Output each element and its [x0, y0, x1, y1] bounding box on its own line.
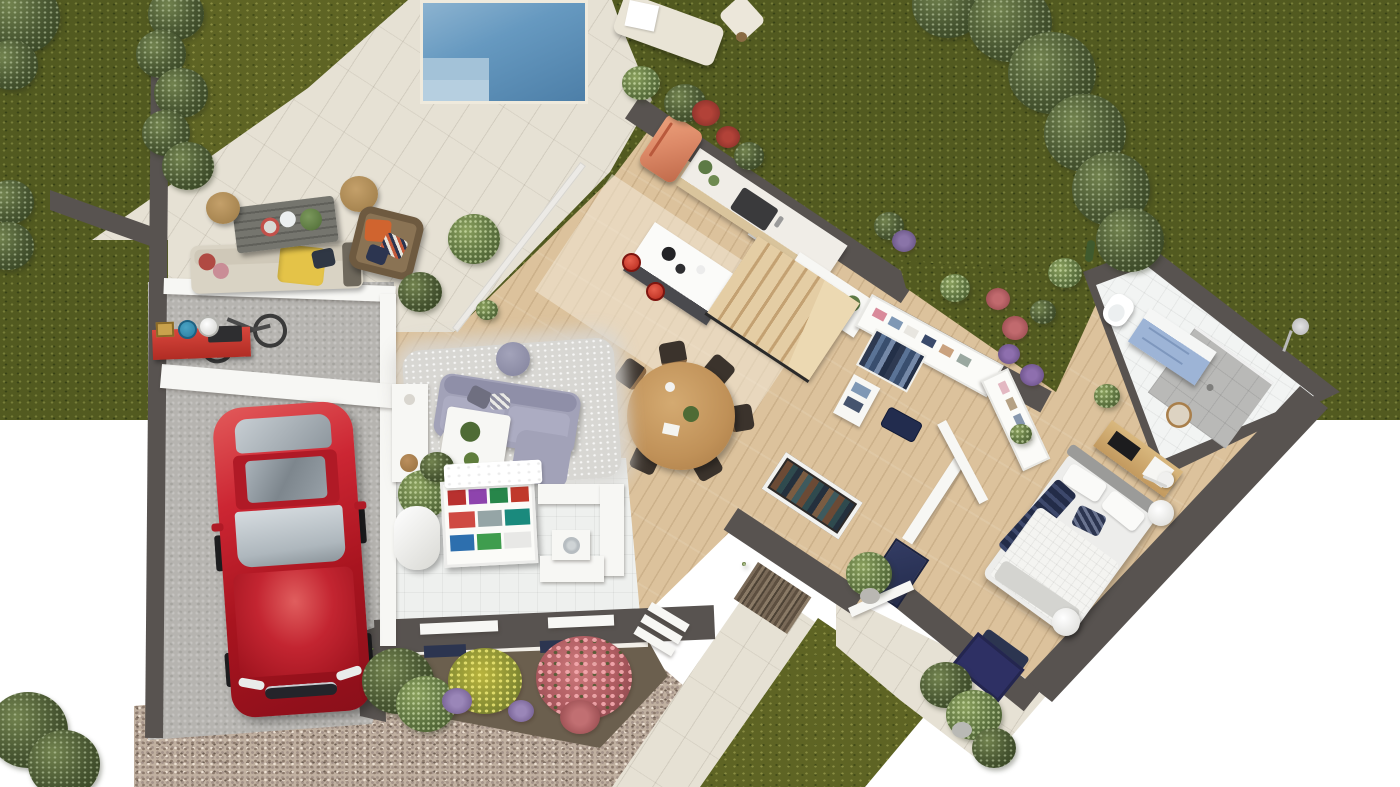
- bathroom-plant: [1094, 384, 1120, 408]
- plant-pot: [860, 588, 880, 604]
- table-plant: [299, 207, 324, 232]
- drawer-line: [1148, 327, 1189, 355]
- clothes-pile: [903, 325, 919, 339]
- blue-bucket: [178, 320, 197, 339]
- monstera-plant: [972, 728, 1016, 768]
- basket-icon: [400, 454, 418, 472]
- bush: [622, 66, 660, 100]
- storage-box: [449, 511, 476, 528]
- car-mirror: [211, 523, 224, 532]
- bush: [734, 142, 764, 170]
- storage-box: [489, 487, 508, 503]
- car-windshield: [234, 505, 346, 568]
- lavender-bush: [508, 700, 534, 722]
- pink-pillow: [213, 263, 230, 280]
- bowl-icon: [673, 262, 687, 276]
- clothes-pile: [872, 308, 888, 322]
- round-mirror: [1166, 402, 1192, 428]
- table-plant: [683, 406, 699, 422]
- storage-box: [510, 486, 529, 502]
- table-plant: [459, 420, 482, 443]
- counter-plant: [706, 173, 721, 188]
- red-flower-bush: [692, 100, 720, 126]
- fern-plant: [398, 272, 442, 312]
- vase-icon: [404, 394, 415, 405]
- rattan-pouf: [206, 192, 240, 224]
- plate-icon: [260, 216, 281, 237]
- car-sunroof: [245, 456, 328, 503]
- floor-pouf: [496, 342, 530, 376]
- storage-box: [447, 490, 466, 506]
- hedge-bush: [162, 142, 214, 190]
- bedroom-plant: [1010, 424, 1032, 444]
- bush: [1030, 300, 1056, 324]
- dining-table: [627, 362, 735, 470]
- red-sports-car: [205, 395, 379, 723]
- terrace-side-table: [1054, 610, 1056, 612]
- storage-box: [450, 534, 475, 551]
- pool-steps: [423, 80, 489, 101]
- shower-drain-icon: [1205, 383, 1215, 393]
- pink-flower-bush: [1002, 316, 1028, 340]
- pink-flower-bush: [986, 288, 1010, 310]
- clothes-pile: [1005, 397, 1017, 411]
- water-heater: [394, 506, 440, 570]
- sofa-pillow: [490, 393, 511, 410]
- navy-pillow: [311, 247, 336, 269]
- garden-ball: [736, 32, 747, 42]
- plant-pot: [952, 722, 972, 738]
- pool-steps: [423, 58, 489, 80]
- crate: [156, 322, 175, 338]
- clothes-pile: [939, 344, 955, 358]
- storage-box: [505, 508, 531, 525]
- floor-plan-render: [0, 0, 1400, 787]
- potted-plant: [476, 300, 498, 320]
- palm-shrub: [1048, 258, 1082, 288]
- washer-door-icon: [563, 537, 580, 554]
- bush: [372, 648, 374, 650]
- bush: [940, 274, 970, 302]
- red-flower-bush: [716, 126, 740, 148]
- folded-clothes: [843, 396, 864, 413]
- lavender-bush: [442, 688, 472, 714]
- clothes-pile: [998, 380, 1010, 394]
- pink-rose-bush: [560, 700, 600, 734]
- cup-icon: [665, 382, 675, 392]
- shower-pole: [1282, 330, 1292, 352]
- shower-head-icon: [1292, 318, 1309, 335]
- storage-box: [504, 531, 532, 548]
- shower-head-fixture: [1278, 318, 1312, 352]
- kettle-icon: [695, 263, 707, 275]
- plate-icon: [279, 210, 297, 228]
- tree: [1096, 208, 1164, 272]
- faucet-icon: [773, 215, 784, 228]
- towel: [624, 0, 659, 32]
- side-table: [1052, 608, 1080, 636]
- clothes-pile: [921, 334, 937, 348]
- banana-plant: [448, 214, 500, 264]
- toilet-seat: [1105, 301, 1128, 325]
- bush: [742, 562, 746, 566]
- washing-machine: [552, 530, 590, 560]
- car-hood: [233, 566, 360, 678]
- storage-box: [468, 489, 487, 505]
- clothes-pile: [888, 316, 904, 330]
- bar-stool: [622, 253, 641, 272]
- purple-flower-bush: [892, 230, 916, 252]
- car-mirror: [354, 501, 367, 510]
- purple-flower-bush: [998, 344, 1020, 364]
- white-bucket: [198, 316, 219, 337]
- storage-box: [478, 510, 503, 527]
- folded-clothes: [851, 382, 872, 399]
- napkin-icon: [662, 422, 680, 436]
- shelf-quilt-top: [443, 459, 542, 488]
- storage-shelf: [440, 477, 538, 568]
- car-rear-window: [234, 413, 332, 454]
- bowl-icon: [659, 244, 678, 263]
- floor-lamp: [1136, 470, 1176, 510]
- bar-stool: [646, 282, 665, 301]
- clothes-pile: [956, 353, 972, 367]
- purple-flower-bush: [1020, 364, 1044, 386]
- storage-box: [477, 533, 502, 550]
- tree: [28, 730, 100, 787]
